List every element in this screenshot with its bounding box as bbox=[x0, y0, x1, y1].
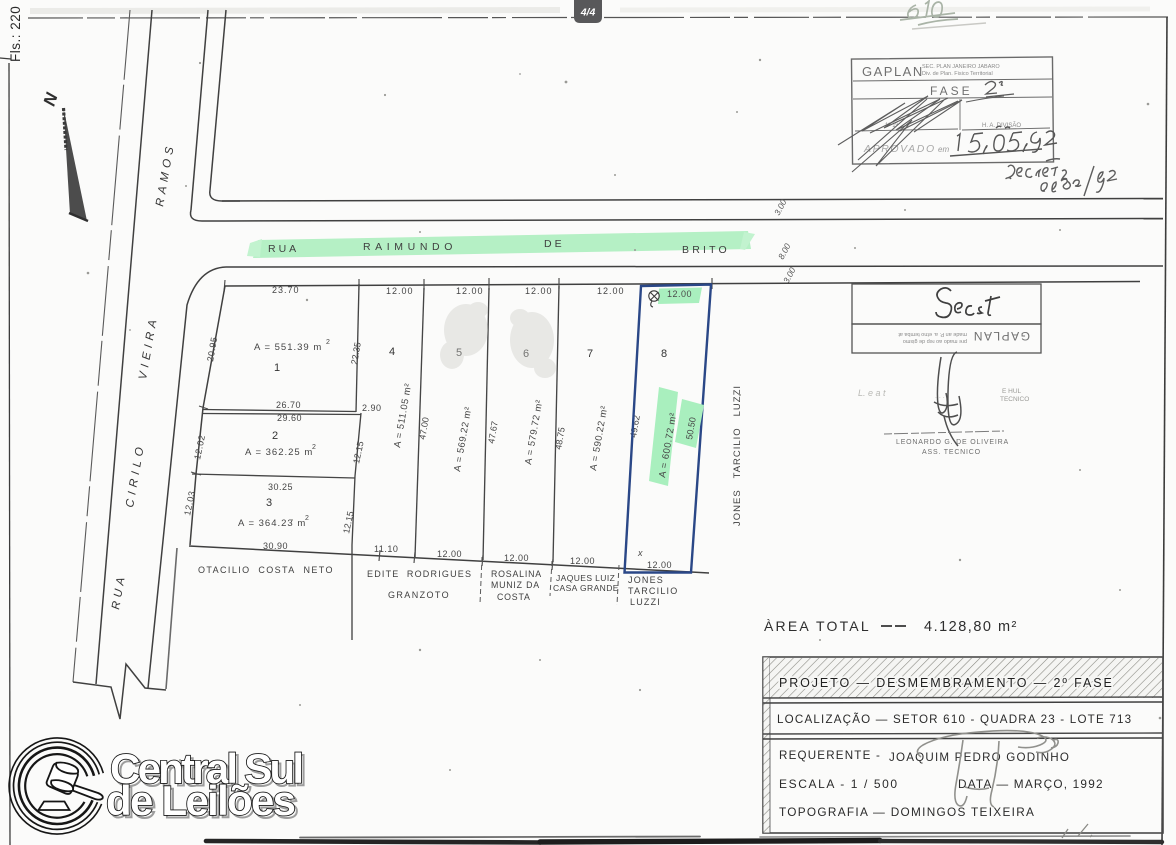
svg-text:REQUERENTE -: REQUERENTE - bbox=[779, 749, 881, 762]
svg-text:12.00: 12.00 bbox=[525, 286, 553, 296]
svg-text:JONES: JONES bbox=[628, 575, 664, 585]
svg-text:LUZZI: LUZZI bbox=[630, 597, 661, 607]
svg-text:12.00: 12.00 bbox=[597, 286, 625, 296]
svg-text:. . .: . . . bbox=[935, 393, 945, 400]
svg-text:LEONARDO G. DE OLIVEIRA: LEONARDO G. DE OLIVEIRA bbox=[896, 439, 1009, 446]
svg-text:A = 590.22 m²: A = 590.22 m² bbox=[588, 405, 610, 472]
svg-text:12.00: 12.00 bbox=[647, 560, 672, 570]
svg-text:12.00: 12.00 bbox=[667, 289, 692, 299]
svg-text:em: em bbox=[938, 145, 949, 154]
svg-text:TOPOGRAFIA — DOMINGOS TEIXEI: TOPOGRAFIA — DOMINGOS TEIXEIRA bbox=[779, 805, 1035, 819]
svg-text:3.00: 3.00 bbox=[772, 197, 789, 217]
svg-text:x: x bbox=[637, 548, 643, 558]
svg-text:A = 362.25 m: A = 362.25 m bbox=[245, 447, 313, 458]
svg-text:2: 2 bbox=[305, 515, 309, 522]
svg-text:OTACILIO COSTA NETO: OTACILIO COSTA NETO bbox=[198, 565, 334, 575]
svg-text:3: 3 bbox=[266, 497, 272, 509]
svg-text:ASS. TECNICO: ASS. TECNICO bbox=[922, 449, 981, 456]
svg-text:2: 2 bbox=[312, 444, 316, 451]
svg-text:12.00: 12.00 bbox=[437, 549, 462, 559]
svg-text:4/4: 4/4 bbox=[580, 7, 596, 19]
svg-text:3.00: 3.00 bbox=[781, 265, 798, 285]
svg-text:2.90: 2.90 bbox=[362, 403, 382, 413]
svg-text:1: 1 bbox=[274, 362, 280, 374]
svg-text:A = 569.22 m²: A = 569.22 m² bbox=[452, 406, 474, 473]
svg-text:de Leilões: de Leilões bbox=[106, 777, 296, 824]
svg-text:pre mado ao rep de gismo: pre mado ao rep de gismo bbox=[903, 338, 967, 344]
svg-text:CIRILO: CIRILO bbox=[124, 442, 147, 508]
svg-text:PROJETO — DESMEMBRAMENTO — 2º: PROJETO — DESMEMBRAMENTO — 2º FASE bbox=[779, 676, 1114, 690]
svg-text:7: 7 bbox=[587, 348, 593, 360]
svg-text:CASA GRANDE: CASA GRANDE bbox=[553, 583, 619, 593]
svg-text:12.15: 12.15 bbox=[341, 510, 355, 534]
svg-text:A = 364.23 m: A = 364.23 m bbox=[238, 518, 306, 529]
svg-text:Div. de Plan. Fisico Territ: Div. de Plan. Fisico Territorial bbox=[922, 71, 993, 77]
svg-text:23.70: 23.70 bbox=[272, 285, 300, 295]
svg-text:8: 8 bbox=[661, 348, 667, 360]
svg-text:VIEIRA: VIEIRA bbox=[137, 315, 160, 381]
svg-text:GAPLAN: GAPLAN bbox=[972, 329, 1030, 343]
svg-text:DATA — MARÇO, 1992: DATA — MARÇO, 1992 bbox=[958, 777, 1104, 791]
svg-text:GRANZOTO: GRANZOTO bbox=[388, 590, 450, 600]
svg-text:A = 511.05 m²: A = 511.05 m² bbox=[392, 382, 414, 448]
svg-text:48.75: 48.75 bbox=[553, 426, 567, 450]
svg-text:EDITE RODRIGUES: EDITE RODRIGUES bbox=[367, 569, 472, 579]
svg-text:22.35: 22.35 bbox=[349, 341, 363, 365]
svg-text:COSTA: COSTA bbox=[497, 592, 531, 602]
svg-text:12.00: 12.00 bbox=[570, 556, 595, 566]
svg-text:made an P. a. etno temba: made an P. a. etno temba at bbox=[898, 331, 967, 337]
svg-text:ESCALA - 1 / 500: ESCALA - 1 / 500 bbox=[779, 777, 899, 791]
svg-text:Fls.: 220: Fls.: 220 bbox=[8, 6, 23, 62]
svg-text:8.00: 8.00 bbox=[776, 241, 793, 261]
svg-text:TECNICO: TECNICO bbox=[1000, 396, 1029, 403]
svg-text:ÀREA TOTAL: ÀREA TOTAL bbox=[764, 618, 871, 634]
svg-text:L. e a t: L. e a t bbox=[858, 388, 886, 398]
svg-text:N: N bbox=[40, 90, 62, 108]
svg-text:2: 2 bbox=[326, 339, 330, 346]
svg-text:12.03: 12.03 bbox=[182, 490, 197, 517]
svg-text:12.00: 12.00 bbox=[456, 286, 484, 296]
svg-text:12.15: 12.15 bbox=[351, 440, 365, 464]
svg-text:12.00: 12.00 bbox=[504, 553, 529, 563]
svg-text:TARCILIO: TARCILIO bbox=[628, 586, 678, 596]
svg-text:20.95: 20.95 bbox=[205, 336, 219, 362]
svg-text:47.67: 47.67 bbox=[486, 420, 500, 444]
svg-text:RAMOS: RAMOS bbox=[154, 142, 177, 208]
svg-text:30.25: 30.25 bbox=[268, 482, 293, 492]
svg-text:12.02: 12.02 bbox=[192, 434, 207, 461]
svg-text:2: 2 bbox=[272, 430, 278, 442]
svg-text:49.62: 49.62 bbox=[628, 414, 642, 438]
svg-text:4: 4 bbox=[389, 346, 395, 358]
svg-text:SEC. PLAN JANEIRO JABARO: SEC. PLAN JANEIRO JABARO bbox=[922, 64, 1000, 70]
svg-text:H. A. DIVISÃO: H. A. DIVISÃO bbox=[982, 122, 1021, 129]
svg-text:JAQUES LUIZ: JAQUES LUIZ bbox=[556, 573, 615, 583]
svg-text:ROSALINA: ROSALINA bbox=[491, 569, 542, 579]
svg-text:RUA: RUA bbox=[268, 243, 299, 255]
svg-text:29.60: 29.60 bbox=[277, 413, 302, 423]
svg-text:DE: DE bbox=[544, 238, 565, 250]
svg-text:26.70: 26.70 bbox=[276, 400, 301, 410]
svg-text:RAIMUNDO: RAIMUNDO bbox=[363, 241, 457, 253]
svg-text:12.00: 12.00 bbox=[386, 286, 414, 296]
svg-text:4.128,80 m²: 4.128,80 m² bbox=[924, 619, 1018, 635]
svg-text:11.10: 11.10 bbox=[374, 544, 398, 554]
svg-text:MUNIZ DA: MUNIZ DA bbox=[491, 580, 540, 590]
svg-text:FASE: FASE bbox=[930, 84, 973, 98]
svg-text:GAPLAN: GAPLAN bbox=[862, 64, 924, 79]
svg-text:A = 579.72 m²: A = 579.72 m² bbox=[523, 399, 545, 466]
svg-text:BRITO: BRITO bbox=[682, 244, 730, 256]
svg-text:RUA: RUA bbox=[110, 573, 128, 611]
svg-text:JONES TARCILIO LUZZI: JONES TARCILIO LUZZI bbox=[732, 385, 743, 526]
svg-text:30.90: 30.90 bbox=[263, 541, 288, 551]
svg-text:LOCALIZAÇÃO — SETOR 610 - QUAD: LOCALIZAÇÃO — SETOR 610 - QUADRA 23 - LO… bbox=[777, 713, 1132, 726]
svg-text:A = 551.39 m: A = 551.39 m bbox=[254, 342, 322, 353]
svg-text:E HUL: E HUL bbox=[1002, 388, 1022, 395]
